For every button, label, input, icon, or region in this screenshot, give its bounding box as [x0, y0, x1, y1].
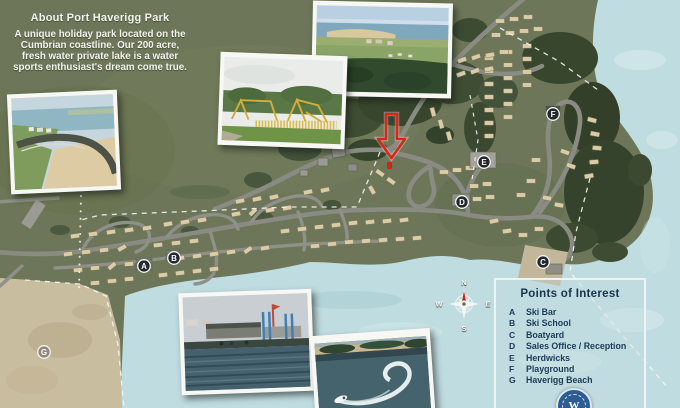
legend-letter: G	[509, 375, 526, 385]
map-marker-c: C	[537, 256, 550, 269]
legend-item-e: E Herdwicks	[496, 353, 644, 364]
photo-playground	[217, 52, 347, 149]
photo-haverigg-beach-aerial	[7, 90, 121, 195]
legend-letter: F	[509, 364, 526, 374]
legend-letter: A	[509, 307, 526, 317]
legend-label: Boatyard	[526, 330, 564, 340]
about-body: A unique holiday park located on the Cum…	[6, 29, 194, 73]
legend-item-f: F Playground	[496, 364, 644, 375]
compass-n: N	[461, 278, 466, 287]
compass-e: E	[485, 300, 490, 309]
map-marker-d: D	[456, 196, 469, 209]
legend-label: Haverigg Beach	[526, 375, 593, 385]
legend-item-d: D Sales Office / Reception	[496, 341, 644, 352]
legend-item-b: B Ski School	[496, 318, 644, 329]
map-marker-f: F	[547, 108, 560, 121]
map-marker-a: A	[138, 260, 151, 273]
svg-text:E: E	[481, 158, 487, 167]
legend-item-g: G Haverigg Beach	[496, 375, 644, 386]
svg-text:C: C	[540, 258, 546, 267]
svg-text:D: D	[459, 198, 465, 207]
highlighted-plot	[387, 162, 392, 169]
badge-letter: W	[569, 400, 580, 408]
legend-label: Herdwicks	[526, 353, 570, 363]
photo-speedboat	[310, 328, 436, 408]
legend-letter: E	[509, 353, 526, 363]
svg-text:B: B	[171, 254, 177, 263]
svg-text:G: G	[41, 348, 47, 357]
map-marker-e: E	[478, 156, 491, 169]
photo-marina	[178, 289, 314, 396]
legend-label: Ski School	[526, 318, 571, 328]
svg-text:A: A	[141, 262, 147, 271]
svg-text:F: F	[551, 110, 556, 119]
legend-item-a: A Ski Bar	[496, 307, 644, 318]
legend-label: Sales Office / Reception	[526, 341, 626, 351]
sand-beach	[0, 278, 122, 408]
legend-label: Playground	[526, 364, 574, 374]
about-title: About Port Haverigg Park	[6, 12, 194, 24]
legend-letter: D	[509, 341, 526, 351]
legend-item-c: C Boatyard	[496, 330, 644, 341]
legend-label: Ski Bar	[526, 307, 556, 317]
holiday-park-map: N E S W A B C D E F G	[0, 0, 680, 408]
compass-s: S	[461, 324, 466, 333]
legend-letter: B	[509, 318, 526, 328]
legend-title: Points of Interest	[496, 288, 644, 300]
compass-w: W	[435, 300, 443, 309]
map-marker-b: B	[168, 252, 181, 265]
about-panel: About Port Haverigg Park A unique holida…	[6, 12, 194, 73]
legend-letter: C	[509, 330, 526, 340]
map-marker-g: G	[38, 346, 51, 359]
